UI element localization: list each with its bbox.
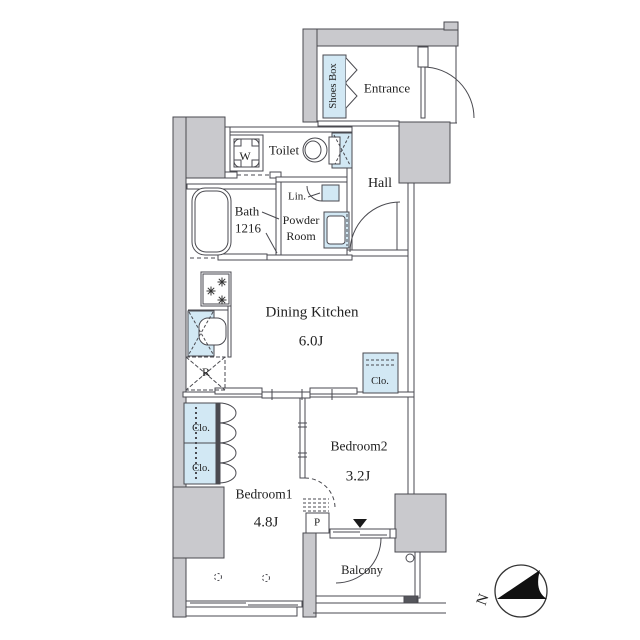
dk-slider-panel-2 — [262, 392, 310, 398]
label-bath-size: 1216 — [235, 222, 261, 235]
label-bedroom1: Bedroom1 — [236, 487, 293, 501]
entrance-door-swing — [423, 67, 474, 118]
label-bedroom2-size: 3.2J — [346, 470, 371, 485]
pillar-bottom-right — [395, 494, 446, 552]
entrance-door-frame — [418, 47, 428, 67]
label-entrance: Entrance — [364, 82, 410, 95]
toilet-tank — [329, 137, 340, 164]
entrance-step — [318, 121, 399, 126]
burner-3 — [218, 296, 227, 305]
wall-powder-top — [276, 177, 352, 182]
wall-top-notch — [444, 22, 458, 30]
label-shoes-box: Shoes Box — [329, 63, 340, 108]
bedroom1-window-sill — [186, 607, 297, 616]
bathtub — [192, 188, 231, 255]
wall-bedroom-divider — [300, 397, 305, 478]
label-toilet: Toilet — [269, 144, 299, 157]
balcony-slider — [330, 529, 390, 538]
wall-hall-dk — [347, 250, 414, 256]
bath-leader-2 — [266, 233, 277, 253]
shoes-box-door-chevron-1 — [346, 58, 357, 82]
kitchen-sink — [199, 318, 226, 345]
balcony-access-triangle — [353, 519, 367, 528]
label-powder-1: Powder — [283, 214, 320, 226]
wall-washroom-bottom — [267, 255, 352, 260]
burner-2 — [207, 287, 216, 296]
balcony-bottom-rail — [316, 596, 418, 603]
wall-entrance-left — [303, 29, 317, 122]
wall-top-band — [303, 29, 458, 46]
bedroom1-window — [186, 601, 302, 607]
wall-balcony-right — [415, 552, 420, 598]
label-bedroom1-size: 4.8J — [254, 516, 279, 531]
floor-mark-2 — [263, 575, 270, 582]
label-dining-kitchen: Dining Kitchen — [266, 306, 359, 321]
closet-door-arc-3 — [219, 443, 236, 463]
stove — [201, 272, 231, 306]
compass: N — [474, 565, 547, 617]
entrance-door-leaf — [421, 67, 425, 118]
washbasin — [327, 216, 345, 244]
burner-1 — [218, 278, 227, 287]
label-pipe-space: P — [314, 518, 320, 529]
pillar-top-right — [399, 122, 450, 183]
label-closet1-lower: Clo. — [192, 464, 210, 475]
label-bedroom2: Bedroom2 — [331, 439, 388, 453]
floor-mark-1 — [215, 574, 222, 581]
label-powder-2: Room — [286, 230, 315, 242]
label-closet-dining: Clo. — [371, 377, 389, 388]
label-washer: W — [239, 150, 250, 162]
label-hall: Hall — [368, 177, 392, 191]
compass-north-label: N — [474, 592, 493, 608]
dk-slider-panel-3 — [310, 388, 357, 394]
shoes-box-door-chevron-2 — [346, 84, 357, 108]
wall-toilet-bottom-a — [225, 172, 237, 178]
label-linen: Lin. — [288, 192, 306, 203]
washroom-sliding-panel — [218, 254, 267, 260]
balcony-drain — [406, 554, 414, 562]
linen-cabinet — [322, 185, 339, 201]
label-refrigerator: R — [202, 366, 210, 378]
label-bath: Bath — [235, 205, 260, 218]
floor-plan: N Entrance Shoes Box Toilet W Hall Bath … — [0, 0, 640, 640]
label-closet1-upper: Clo. — [192, 424, 210, 435]
balcony-pipe — [404, 596, 417, 603]
closet-door-arc-4 — [219, 463, 236, 483]
closet-door-arc-1 — [219, 403, 236, 423]
wall-left-bulge — [173, 487, 224, 558]
dk-slider-panel-1 — [215, 388, 262, 394]
closet-door-arc-2 — [219, 423, 236, 443]
wall-toilet-left — [225, 127, 230, 177]
hall-door-swing — [350, 202, 400, 252]
wall-right — [408, 183, 414, 494]
label-dk-size: 6.0J — [299, 335, 324, 350]
wall-toilet-top — [225, 127, 352, 132]
wall-balcony-left — [303, 533, 316, 617]
label-balcony: Balcony — [341, 564, 383, 577]
